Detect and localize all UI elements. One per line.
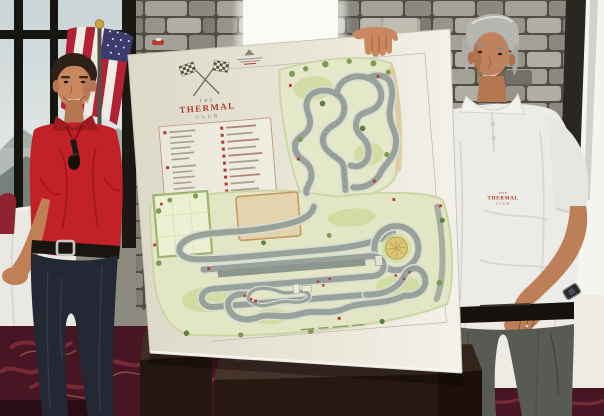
gripping-hand <box>348 24 402 60</box>
poster-board: THE THERMAL CLUB <box>0 0 604 416</box>
clubhouse-photo: THE THERMAL CLUB <box>0 0 604 416</box>
